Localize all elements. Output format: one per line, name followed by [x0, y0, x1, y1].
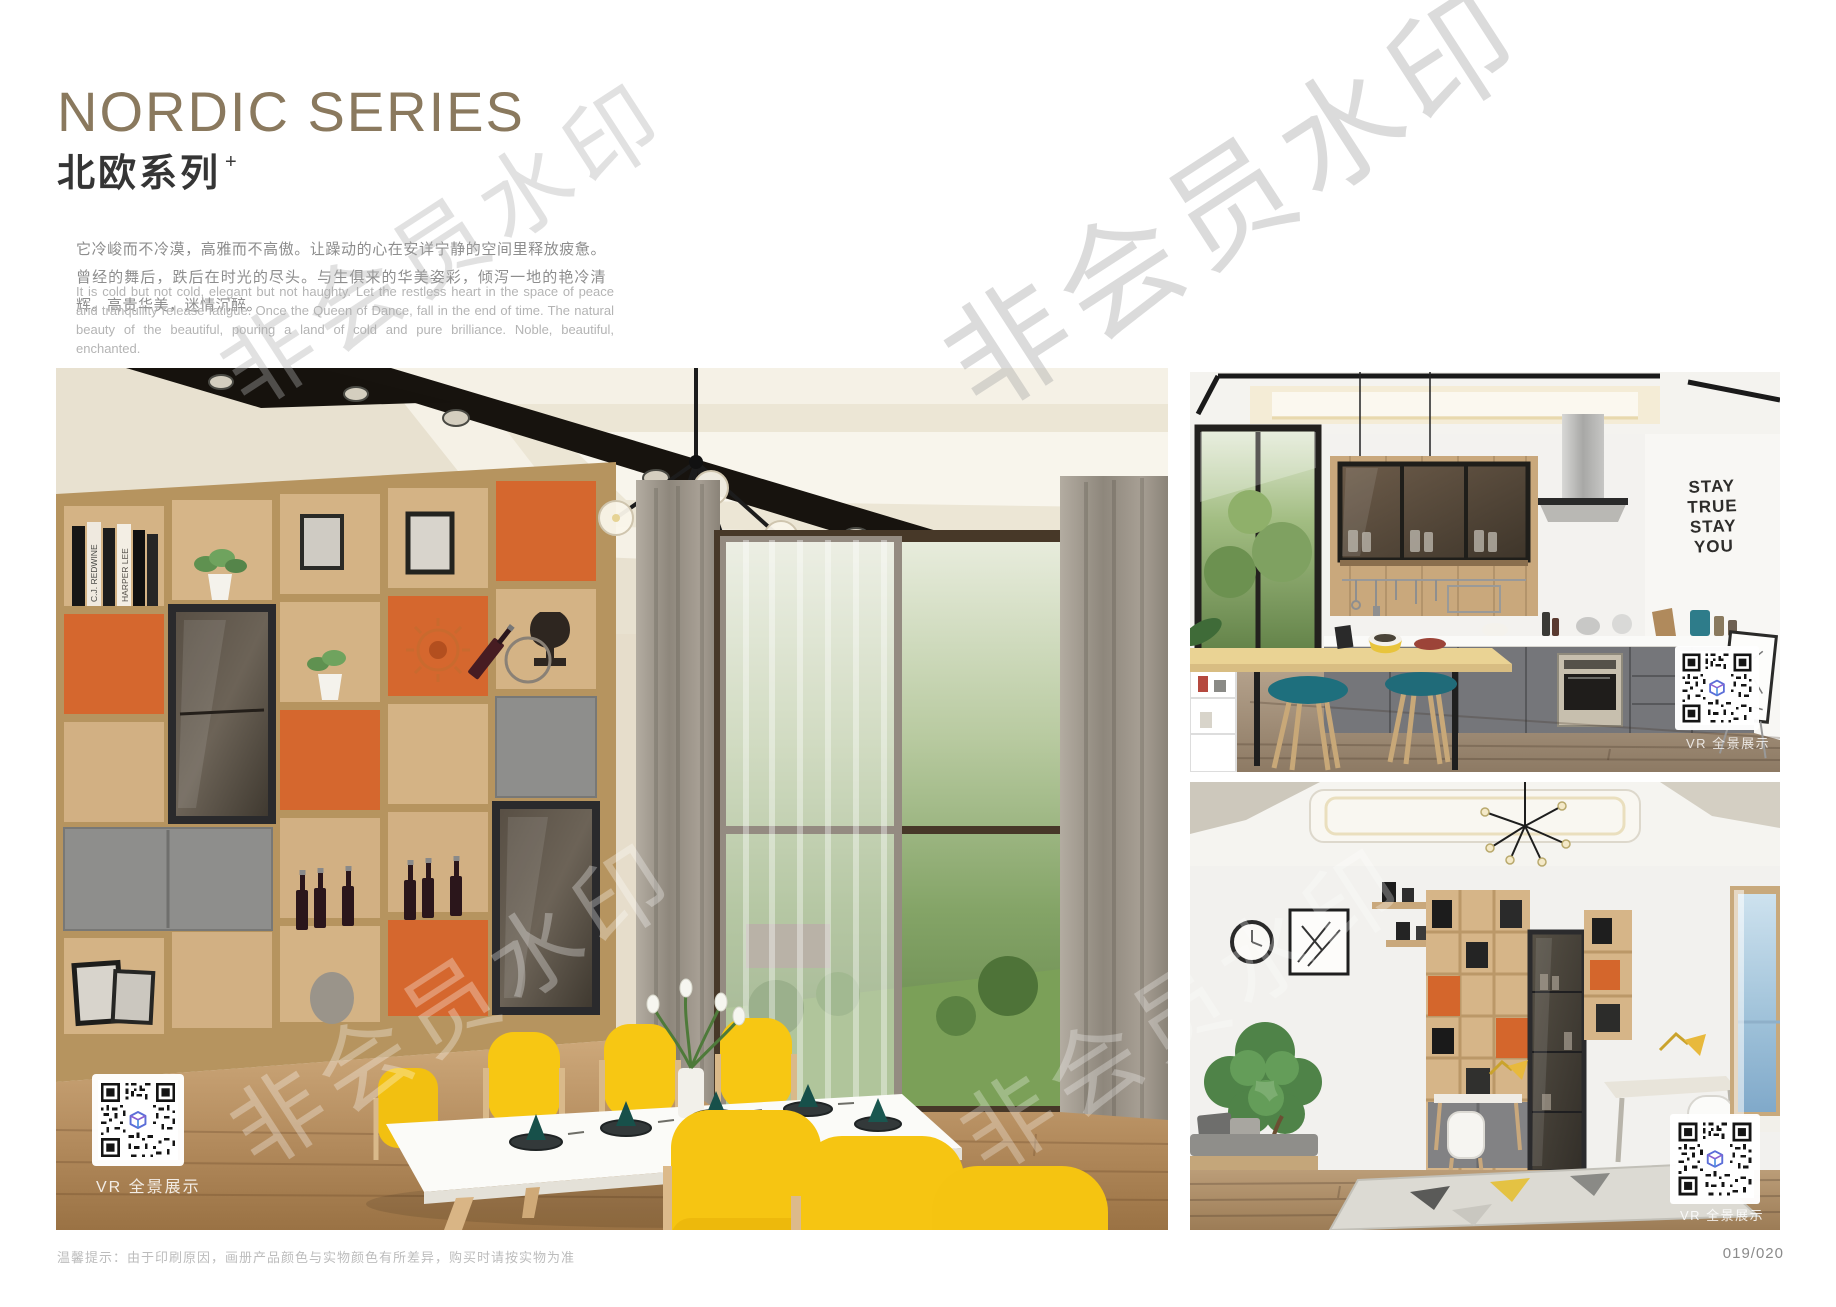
- shelving-unit: C.J. REDWINE HARPER LEE: [56, 462, 616, 1082]
- intro-paragraph-en: It is cold but not cold, elegant but not…: [76, 283, 614, 358]
- cubby-unit: [1584, 910, 1632, 1040]
- wall-art: [1290, 910, 1348, 974]
- vr-qr-dining: [92, 1074, 184, 1166]
- svg-text:STAY: STAY: [1688, 476, 1735, 497]
- subtitle-text: 北欧系列: [57, 153, 221, 195]
- page-subtitle: 北欧系列+: [57, 150, 240, 198]
- wall-decal: STAY TRUE STAY YOU: [1686, 476, 1739, 557]
- study-window: [1730, 890, 1780, 1132]
- glass-cabinet-2: [496, 805, 596, 1011]
- svg-text:TRUE: TRUE: [1687, 496, 1738, 517]
- catalog-page: NORDIC SERIES 北欧系列+ 它冷峻而不冷漠，高雅而不高傲。让躁动的心…: [0, 0, 1836, 1307]
- window: [636, 476, 1168, 1148]
- study-ceiling: [1190, 782, 1780, 866]
- kitchen-photo: STAY TRUE STAY YOU VR 全景展示: [1190, 372, 1780, 772]
- wall-clock: [1232, 922, 1272, 962]
- upper-cabinet: [1330, 456, 1538, 616]
- vr-qr-kitchen: [1675, 646, 1759, 730]
- book-spine-1: C.J. REDWINE: [89, 544, 99, 602]
- svg-text:STAY: STAY: [1690, 516, 1737, 537]
- vr-qr-study: [1670, 1114, 1760, 1204]
- svg-text:YOU: YOU: [1694, 536, 1734, 556]
- vr-label-study: VR 全景展示: [1680, 1208, 1764, 1223]
- subtitle-plus: +: [225, 151, 240, 173]
- footer-note: 温馨提示：由于印刷原因，画册产品颜色与实物颜色有所差异，购买时请按实物为准: [57, 1247, 575, 1266]
- page-title: NORDIC SERIES: [57, 84, 525, 140]
- display-cabinet: [1530, 932, 1584, 1172]
- vr-label-dining: VR 全景展示: [96, 1178, 201, 1196]
- page-number: 019/020: [1723, 1245, 1784, 1262]
- book-spine-2: HARPER LEE: [120, 548, 130, 602]
- dining-room-photo: C.J. REDWINE HARPER LEE: [56, 368, 1168, 1230]
- built-in-oven: [1558, 654, 1622, 726]
- vr-label-kitchen: VR 全景展示: [1686, 736, 1770, 751]
- glass-cabinet: [172, 608, 272, 820]
- study-room-photo: VR 全景展示: [1190, 782, 1780, 1230]
